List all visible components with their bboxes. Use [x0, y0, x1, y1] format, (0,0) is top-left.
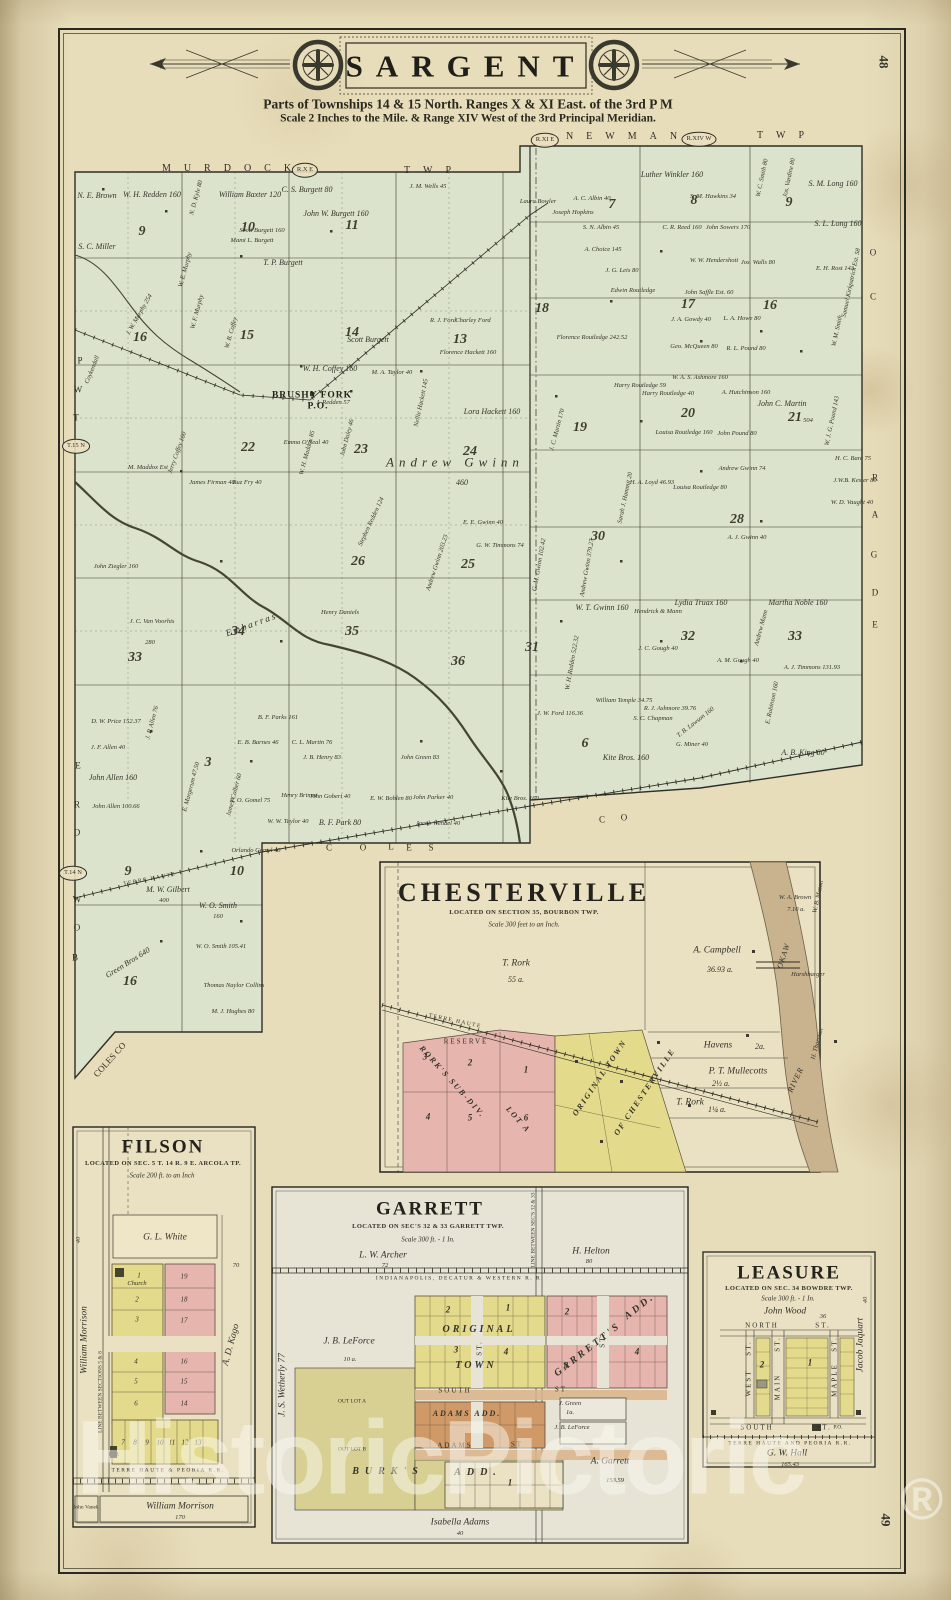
map-label: H. Helton [572, 1247, 609, 1257]
map-label: Harry Routledge 59 [614, 383, 666, 390]
map-label: 460 [456, 479, 468, 487]
map-label: James Colber 60 [226, 773, 244, 817]
map-label: W. C. Smith 80 [756, 158, 770, 197]
map-label: E [872, 621, 878, 630]
map-label: S [428, 844, 433, 853]
map-label: 9 [125, 865, 132, 879]
map-label: Scott Burgett 160 [239, 228, 284, 235]
river-label-okaw: OKAW [776, 942, 792, 970]
map-label: 6 [524, 1114, 529, 1123]
map-label: E. Margerum 47.50 [182, 762, 201, 813]
map-label: 40 [457, 1531, 464, 1538]
map-label: W [74, 386, 83, 395]
map-label: 31 [525, 641, 539, 655]
map-label: 1 [808, 1359, 813, 1368]
map-label: Andrew Gwinn 74 [718, 466, 765, 473]
map-label: 16 [763, 299, 777, 313]
map-label: NORTH [745, 1323, 779, 1330]
map-label: T. P. Burgett [263, 259, 302, 267]
map-label: John Saffle Est. 60 [685, 290, 734, 297]
map-label: 2 [135, 1297, 139, 1304]
map-label: 4 [635, 1348, 640, 1357]
map-label: Edwin Routledge [611, 288, 656, 295]
map-label: John Allen 100.66 [92, 804, 139, 811]
map-label: 16 [133, 331, 147, 345]
map-label: C [599, 816, 605, 825]
map-label: W. O. Smith 105.41 [196, 944, 246, 951]
map-label: ST. [600, 1332, 607, 1347]
map-label: Samuel Kirkpatrick Est. 58 [842, 248, 863, 318]
map-label: N. D. Kyle 80 [189, 180, 204, 216]
map-label: A. M. Gough 40 [717, 658, 759, 665]
map-label: 40 [863, 1297, 870, 1304]
map-label: G. M. Gwinn 102.42 [532, 538, 548, 592]
map-label: G [871, 551, 878, 560]
map-label: R. O. Gomel 75 [230, 798, 271, 805]
map-label: Martha Noble 160 [768, 599, 827, 607]
map-label: Scale 300 ft. - 1 In. [401, 1237, 454, 1244]
map-label: O [870, 249, 877, 258]
map-label: A. D. Kago [222, 1323, 242, 1367]
map-label: S. C. Miller [78, 243, 115, 251]
map-label: Joseph Hopkins [552, 210, 593, 217]
map-label: D [872, 589, 879, 598]
map-label: B [72, 954, 78, 963]
map-label: A [872, 511, 879, 520]
map-label: 5 [468, 1114, 473, 1123]
map-label: LOCATED ON SECTION 35, BOURBON TWP. [449, 910, 599, 917]
map-label: M. A. Taylor 40 [372, 370, 413, 377]
map-label: 23 [354, 443, 368, 457]
map-label: Louisa Routledge 160 [655, 430, 712, 437]
map-label: John Sowers 170 [706, 225, 750, 232]
map-label: Jerry Coffey 160 [167, 431, 188, 474]
map-label: J. A. Gowdy 40 [671, 317, 711, 324]
map-label: W. W. Taylor 40 [268, 819, 309, 826]
map-label: John Pound 80 [717, 431, 756, 438]
map-label: C. S. Burgett 80 [281, 186, 332, 194]
map-label: 25 [461, 558, 475, 572]
map-label: E. W. Bohlen 80 [370, 796, 412, 803]
map-label: Jacob Jaquart [856, 1318, 866, 1373]
atlas-page: SARGENT Parts of Townships 14 & 15 North… [0, 0, 951, 1600]
map-label: R.X E [292, 163, 318, 178]
map-label: Harry Routledge 40 [642, 391, 694, 398]
map-label: O [74, 924, 81, 933]
reserve-label: RESERVE [444, 1039, 489, 1046]
map-label: T.15 N [62, 439, 90, 454]
map-label: A. Campbell [693, 946, 741, 956]
map-label: 28 [730, 513, 744, 527]
map-label: C. R. Reed 160 [662, 225, 701, 232]
map-subtitle-line2: Scale 2 Inches to the Mile. & Range XIV … [280, 113, 656, 125]
map-label: 3 [135, 1317, 139, 1324]
map-label: Scale 300 feet to an Inch. [488, 922, 559, 929]
map-label: John Allen 160 [89, 774, 137, 782]
map-label: RORK'S SUB-DIV. [418, 1044, 487, 1119]
map-label: R. J. Ford [430, 318, 456, 325]
map-label: 17 [181, 1318, 188, 1325]
map-label: LOCATED ON SEC. 5 T. 14 R. 9 E. ARCOLA T… [85, 1161, 241, 1168]
map-label: W. M. Smith [832, 315, 845, 347]
map-label: 3 [205, 756, 212, 770]
map-label: E. Robinson 160 [765, 681, 780, 725]
map-label: C [870, 293, 876, 302]
map-label: E. E. Gwinn 40 [463, 520, 503, 527]
map-label: B. F. Park 80 [319, 819, 361, 827]
map-label: 4 [504, 1348, 509, 1357]
map-label: J. F. Allen 40 [91, 745, 125, 752]
map-label: J. B. LeForce [323, 1337, 374, 1347]
map-label: H. C. Bare 75 [835, 456, 871, 463]
map-label: 4 [426, 1113, 431, 1122]
map-label: John Gobert 40 [310, 794, 351, 801]
map-label: S. M. Long 160 [808, 180, 857, 188]
inset-title-leasure: LEASURE [737, 1264, 841, 1283]
map-label: A. B. King 80 [781, 749, 824, 757]
inset-title-filson: FILSON [122, 1138, 205, 1157]
map-label: RIVER [787, 1066, 806, 1094]
map-label: W. H. Redden 522.32 [565, 635, 581, 690]
map-label: William Morrison [80, 1306, 90, 1374]
map-label: Kite Bros. 160 [603, 754, 649, 762]
label-overlay: MURDOCKR.X ETWPR.XI ENEWMANR.XIV WTWPPWT… [0, 0, 951, 1600]
map-label: L [388, 843, 394, 852]
map-label: 20 [681, 407, 695, 421]
map-label: 15 [181, 1379, 188, 1386]
watermark-registered-mark: ® [901, 1471, 944, 1529]
map-label: 80 [586, 1259, 593, 1266]
map-label: Jacob Wendel 40 [416, 821, 460, 828]
map-label: TWP [757, 131, 817, 141]
river-label-embarras: Embarras [225, 612, 279, 639]
map-label: ST. [815, 1323, 830, 1330]
map-label: P.O. [833, 1425, 842, 1431]
map-label: LOCATED ON SEC. 34 BOWDRE TWP. [725, 1286, 853, 1293]
map-label: 1 [506, 1304, 511, 1313]
map-label: 6 [582, 737, 589, 751]
map-label: John C. Martin [757, 400, 806, 408]
map-label: Hendrick & Mann [634, 609, 682, 616]
map-label: LINE BETWEEN SEC'S 32 & 33 [531, 1192, 537, 1267]
map-label: Sarah J. Hammit 20 [617, 472, 634, 525]
map-label: 3 [454, 1346, 459, 1355]
map-label: Laura Bowler [520, 199, 556, 206]
map-label: S. N. Albin 45 [583, 225, 619, 232]
map-label: Orlando Gomel 40 [231, 848, 280, 855]
map-label: 36 [451, 655, 465, 669]
railroad-label: INDIANAPOLIS, DECATUR & WESTERN R. R. [376, 1276, 544, 1282]
map-label: M. W. Gilbert [146, 886, 190, 894]
map-label: W. E. Murphy [178, 252, 194, 288]
map-label: Luther Winkler 160 [641, 171, 703, 179]
map-label: ADD. [623, 1292, 657, 1322]
map-label: R.XIV W [681, 132, 716, 147]
map-label: E [75, 762, 81, 771]
map-label: 18 [535, 302, 549, 316]
map-label: WEST [746, 1369, 753, 1396]
map-label: E. H. Rost 143 [816, 266, 854, 273]
map-label: J. C. Gough 40 [638, 646, 678, 653]
map-label: D [74, 829, 81, 838]
inset-title-chesterville: CHESTERVILLE [398, 880, 650, 906]
map-label: ST. [816, 1425, 831, 1432]
map-label: P [77, 357, 82, 366]
map-label: Scott Burgett [347, 336, 389, 344]
map-label: S. C. Chapman [633, 716, 672, 723]
map-label: M. J. Hughes 80 [212, 1009, 255, 1016]
map-label: 5 [134, 1379, 138, 1386]
map-label: R.XI E [531, 133, 559, 148]
map-label: T. Rork [502, 959, 530, 969]
map-label: ST. [746, 1340, 753, 1355]
map-label: MAPLE [832, 1363, 839, 1397]
map-label: A. J. Gwinn 40 [728, 535, 767, 542]
map-label: J. P. Allen 76 [145, 706, 160, 741]
map-label: A. Choice 145 [584, 247, 621, 254]
map-label: 36 [820, 1314, 827, 1321]
map-label: ST [555, 1387, 567, 1394]
map-label: J. C. Van Voorhis [130, 619, 175, 626]
map-label: J. B. Henry 83 [303, 755, 341, 762]
map-label: James Firman 40 [189, 480, 235, 487]
map-label: 35 [345, 625, 359, 639]
map-label: Coykendall [84, 355, 101, 385]
map-label: 55 a. [508, 976, 524, 984]
map-label: J. C. Martin 170 [549, 408, 566, 451]
map-label: Nellie Hackett 145 [414, 378, 430, 427]
map-label: Andrew Gwinn 379.27 [580, 539, 597, 598]
map-label: 2 [565, 1308, 570, 1317]
map-label: Thomas Naylor Collins [204, 983, 265, 990]
map-label: 32 [681, 630, 695, 644]
map-label: G. W. Timmons 74 [476, 543, 524, 550]
map-label: D. W. Price 152.37 [91, 719, 141, 726]
map-label: 4 [134, 1359, 138, 1366]
map-label: H. A. Loyd 46.93 [630, 480, 674, 487]
map-label: O [621, 814, 628, 823]
map-label: L. W. Archer [359, 1251, 407, 1261]
map-label: W. A. S. Ashmore 160 [672, 375, 728, 382]
map-label: ST. [775, 1336, 782, 1351]
map-label: Henry Daniels [321, 610, 359, 617]
map-label: 13 [453, 333, 467, 347]
map-label: W. H. Coffey 160 [303, 365, 358, 373]
map-label: Harshbarger [791, 972, 825, 979]
map-label: 160 [213, 914, 223, 921]
map-label: J. Redden 57 [316, 400, 350, 407]
map-label: T [73, 414, 79, 423]
map-label: R. J. Ashmore 39.76 [644, 706, 696, 713]
map-label: 2 [468, 1059, 473, 1068]
map-label: SOUTH [438, 1388, 471, 1395]
map-label: Lydia Truax 160 [675, 599, 728, 607]
map-label: Church [127, 1281, 146, 1288]
map-label: W. B. Mason [812, 880, 825, 914]
map-label: TOWN [455, 1361, 496, 1371]
map-label: G. Miner 40 [676, 742, 708, 749]
map-label: Lora Hackett 160 [464, 408, 520, 416]
map-label: W. A. Brown [779, 895, 811, 902]
map-label: W [73, 896, 82, 905]
map-label: 2a. [755, 1043, 765, 1051]
map-label: W. H. Maddox 85 [299, 430, 317, 476]
map-label: W. F. Murphy [190, 294, 205, 330]
map-label: ST. [477, 1340, 484, 1355]
map-label: 1 [524, 1066, 529, 1075]
map-label: 7.10 a. [787, 907, 805, 914]
map-label: Havens [704, 1041, 733, 1051]
map-label: W. H. Redden 160 [123, 191, 181, 199]
map-label: A. C. Albin 40 [574, 196, 611, 203]
map-label: ST. [832, 1336, 839, 1351]
map-label: O [360, 844, 367, 853]
map-label: John W. Burgett 160 [303, 210, 368, 218]
map-label: ORIGINAL TOWN [571, 1038, 628, 1117]
map-label: MAIN [775, 1374, 782, 1401]
map-label: T.14 N [59, 866, 87, 881]
map-label: Andrew Mann [754, 609, 770, 646]
inset-title-garrett: GARRETT [376, 1200, 484, 1219]
map-label: 17 [681, 298, 695, 312]
map-label: 19 [181, 1274, 188, 1281]
map-label: Charley Ford [455, 318, 490, 325]
map-label: E [406, 844, 412, 853]
map-label: Jos. Vardine 80 [783, 158, 798, 199]
map-label: J.W.B. Kester 80 [833, 478, 876, 485]
map-label: William Baxter 120 [219, 191, 281, 199]
map-label: N. E. Brown [77, 192, 116, 200]
map-label: P. T. Mullecotts [709, 1067, 768, 1077]
map-label: S. M. Hawkins 34 [690, 194, 736, 201]
map-label: 15 [240, 329, 254, 343]
watermark: HistoricPictoric [76, 1406, 804, 1511]
map-label: 33 [128, 651, 142, 665]
map-label: Florence Hackett 160 [440, 350, 496, 357]
map-label: 72 [382, 1263, 389, 1270]
map-label: 2½ a. [712, 1080, 730, 1088]
map-label: 504 [803, 418, 813, 425]
map-label: Andrew Gwinn [386, 456, 524, 469]
map-label: Louisa Routledge 80 [673, 485, 727, 492]
map-label: 26 [351, 555, 365, 569]
map-label: A. Hutchinson 160 [722, 390, 771, 397]
map-label: Kite Bros. 160 [501, 796, 539, 803]
map-label: 19 [573, 421, 587, 435]
map-label: S. L. Long 160 [815, 220, 862, 228]
page-number-bottom: 49 [880, 1514, 893, 1527]
map-label: H. Thornton [811, 1028, 826, 1061]
map-label: 3 [423, 1053, 428, 1062]
map-label: William Temple 34.75 [596, 698, 653, 705]
map-label: T. Rork [676, 1098, 704, 1108]
map-label: 33 [788, 630, 802, 644]
map-label: Mami L. Burgett [231, 238, 274, 245]
map-label: R. L. Pound 80 [726, 346, 765, 353]
map-label: R [74, 801, 80, 810]
map-label: W. W. Hendershott [690, 258, 738, 265]
map-label: 1¼ a. [708, 1106, 726, 1114]
map-label: 2 [446, 1306, 451, 1315]
map-label: 22 [241, 441, 255, 455]
map-label: G. L. White [143, 1233, 187, 1243]
map-label: 40 [76, 1237, 83, 1244]
map-label: OF CHESTERVILLE [613, 1047, 677, 1137]
map-label: Isabella Adams [431, 1518, 490, 1528]
map-label: John Parker 40 [413, 795, 453, 802]
map-label: M. Maddox Est [128, 465, 168, 472]
map-subtitle-line1: Parts of Townships 14 & 15 North. Ranges… [263, 97, 673, 111]
map-label: J. G. Leis 80 [605, 268, 638, 275]
map-label: 400 [159, 898, 169, 905]
map-label: Florence Routledge 242.52 [557, 335, 628, 342]
map-label: Stephen Redden 124 [358, 497, 386, 548]
railroad-label: TERRE HAUTE [428, 1014, 482, 1031]
map-label: 10 [230, 865, 244, 879]
map-label: A. J. Timmons 131.93 [784, 665, 840, 672]
map-label: W. B. Coffey [225, 317, 240, 350]
edge-label-newman: NEWMAN [566, 132, 690, 142]
map-label: E. B. Barnes 46 [238, 740, 279, 747]
map-label: John Wood [764, 1307, 806, 1317]
map-label: John Green 83 [401, 755, 439, 762]
map-label: 2 [760, 1361, 765, 1370]
map-label: Buz Fry 40 [233, 480, 262, 487]
map-label: C. L. Martin 76 [292, 740, 333, 747]
map-label: 3 [564, 1362, 569, 1371]
map-label: Geo. McQueen 80 [670, 344, 717, 351]
map-label: 16 [123, 975, 137, 989]
map-label: W. J. G. Pound 143 [825, 396, 842, 447]
page-number-top: 48 [878, 56, 891, 69]
map-label: John Ziegler 160 [94, 564, 138, 571]
map-label: 70 [233, 1263, 240, 1270]
map-label: 10 a. [344, 1357, 357, 1364]
map-label: LOCATED ON SEC'S 32 & 33 GARRETT TWP. [352, 1224, 504, 1231]
map-label: J. M. Wells 45 [410, 184, 447, 191]
map-label: 9 [139, 225, 146, 239]
map-label: Scale 300 ft. - 1 In. [761, 1296, 814, 1303]
map-label: 1 [137, 1273, 141, 1280]
map-label: ORIGINAL [443, 1325, 516, 1335]
map-label: 18 [181, 1297, 188, 1304]
map-label: Jos. Walls 80 [741, 260, 775, 267]
map-label: C [326, 844, 332, 853]
map-label: W. D. Vaught 40 [831, 500, 873, 507]
map-label: W. T. Gwinn 160 [575, 604, 628, 612]
map-label: B. F. Parks 161 [258, 715, 298, 722]
map-label: 16 [181, 1359, 188, 1366]
map-label: TWP [404, 166, 464, 176]
map-label: J. W. Ford 116.36 [537, 711, 583, 718]
map-label: COLES CO [92, 1041, 128, 1079]
map-label: 11 [345, 219, 358, 233]
map-label: 280 [145, 640, 155, 647]
map-label: W. O. Smith [199, 902, 237, 910]
map-label: 36.93 a. [707, 966, 733, 974]
map-label: Scale 200 ft. to an Inch [130, 1173, 195, 1180]
map-label: L. A. Howe 80 [723, 316, 760, 323]
map-label: Andrew Gwinn 203.23 [426, 534, 450, 592]
edge-label-murdock: MURDOCK [162, 164, 304, 174]
map-label: 21 [788, 411, 802, 425]
